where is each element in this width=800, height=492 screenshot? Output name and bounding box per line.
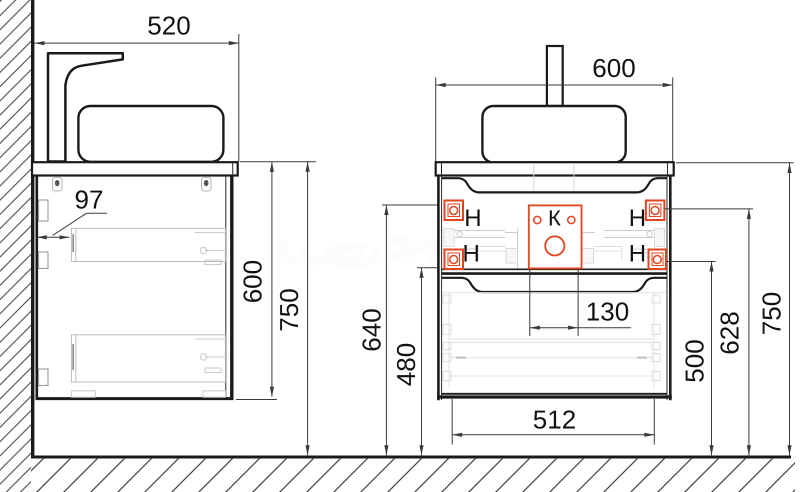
svg-text:Н: Н	[629, 205, 646, 232]
svg-text:628: 628	[715, 311, 745, 354]
svg-text:97: 97	[75, 185, 104, 215]
svg-text:600: 600	[238, 260, 268, 303]
svg-text:520: 520	[147, 11, 190, 41]
svg-text:750: 750	[274, 288, 304, 331]
svg-text:512: 512	[533, 405, 576, 435]
svg-text:750: 750	[756, 292, 786, 335]
svg-text:Н: Н	[463, 241, 480, 268]
svg-text:480: 480	[391, 343, 421, 386]
svg-text:500: 500	[679, 339, 709, 382]
svg-text:Н: Н	[629, 241, 646, 268]
svg-text:640: 640	[357, 308, 387, 351]
svg-text:600: 600	[592, 53, 635, 83]
svg-text:130: 130	[586, 297, 629, 327]
svg-text:Н: Н	[464, 205, 481, 232]
svg-text:К: К	[548, 206, 561, 231]
